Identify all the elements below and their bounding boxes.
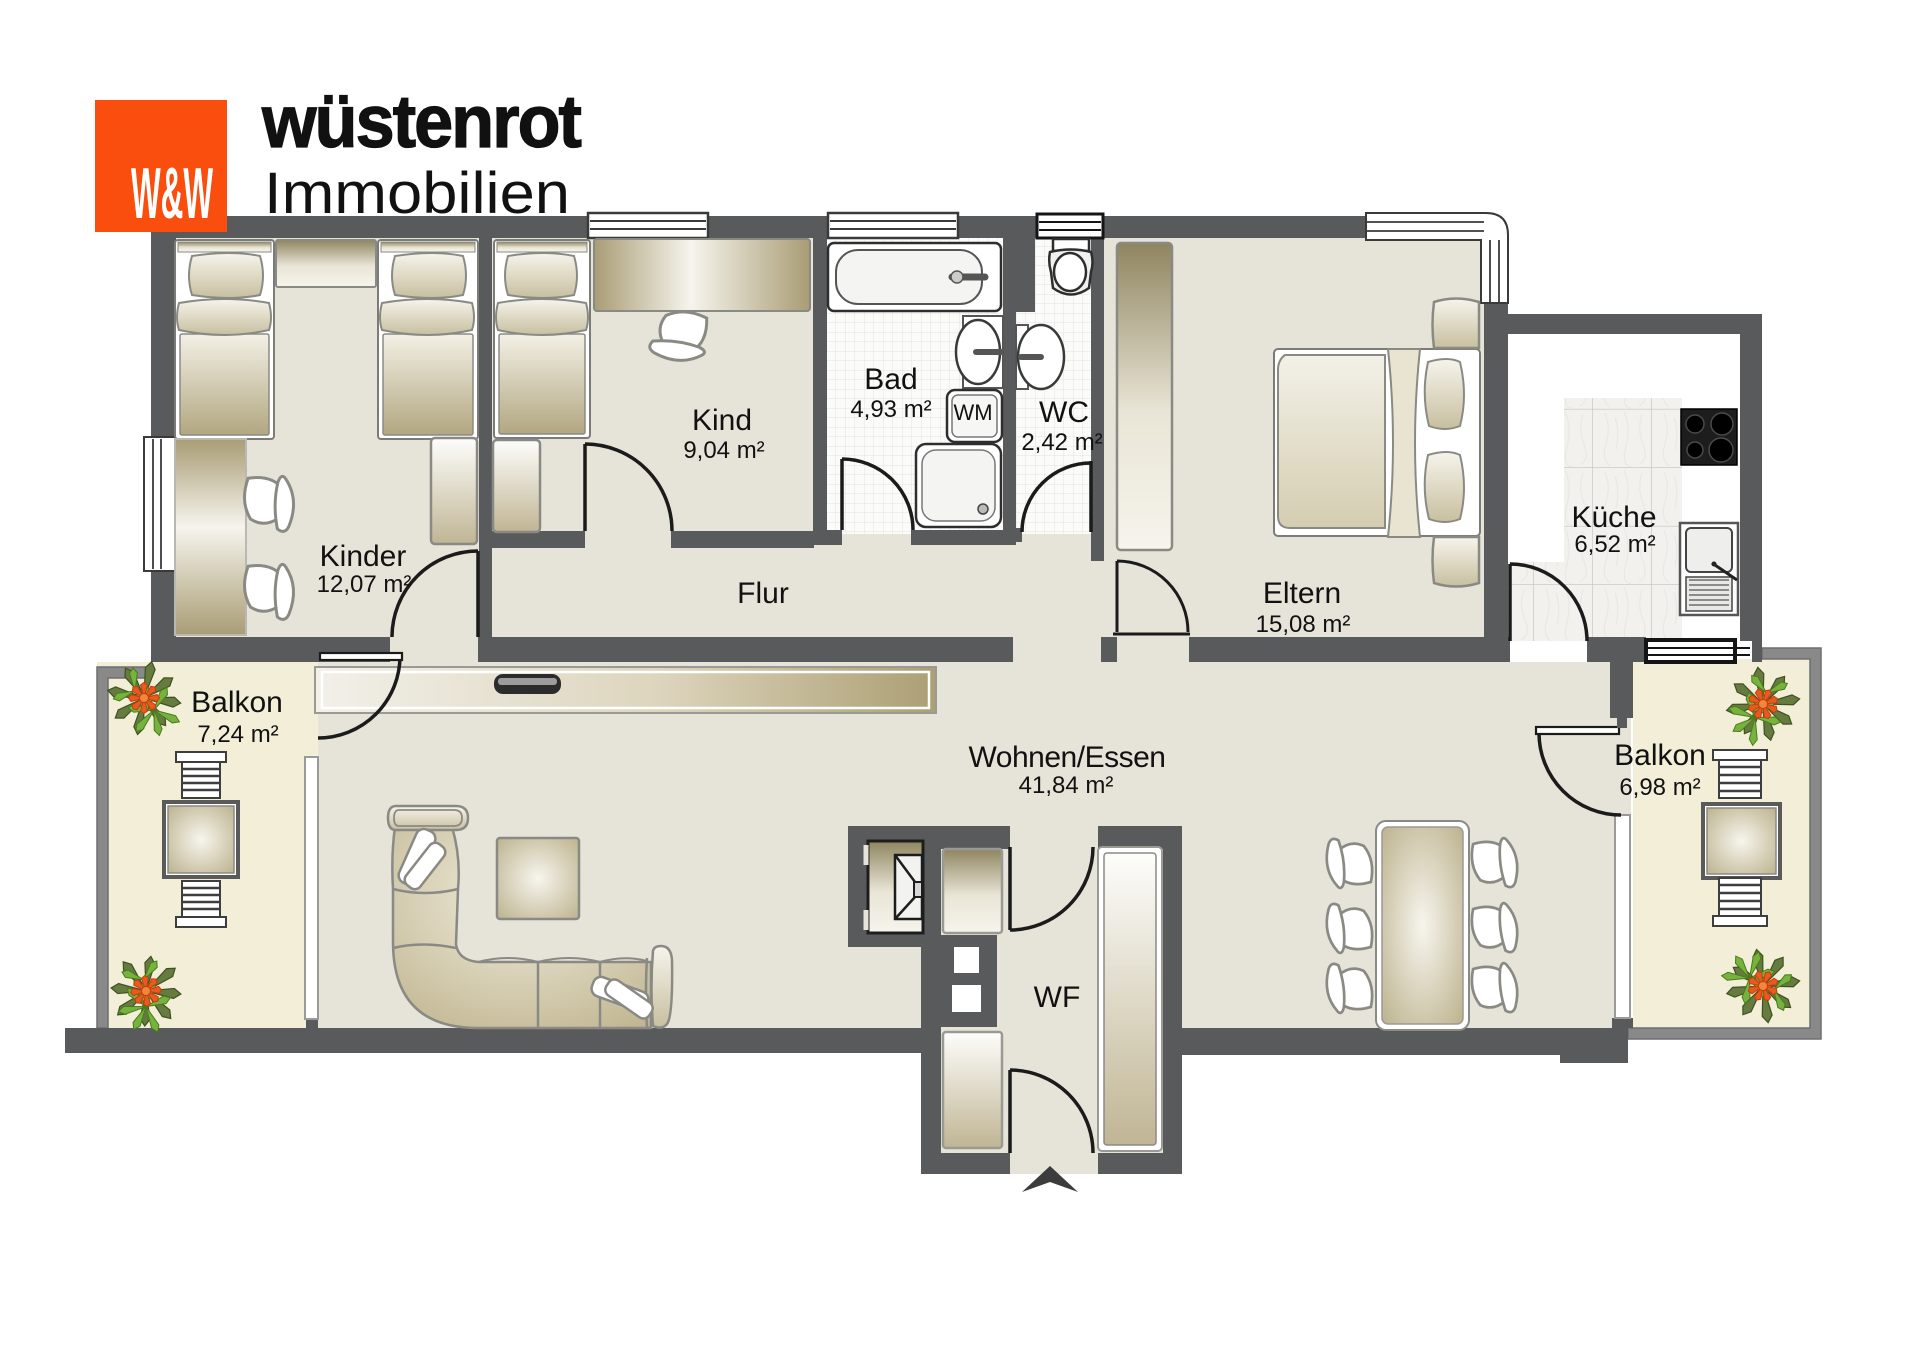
svg-text:Immobilien: Immobilien <box>264 161 570 226</box>
svg-text:7,24 m²: 7,24 m² <box>197 721 278 748</box>
svg-text:2,42 m²: 2,42 m² <box>1021 429 1102 456</box>
svg-text:WF: WF <box>1034 981 1081 1014</box>
svg-text:12,07 m²: 12,07 m² <box>317 571 412 598</box>
svg-text:6,52 m²: 6,52 m² <box>1574 531 1655 558</box>
svg-text:Wohnen/Essen: Wohnen/Essen <box>969 741 1166 774</box>
svg-text:Kind: Kind <box>692 404 752 437</box>
svg-text:Küche: Küche <box>1571 501 1656 534</box>
svg-text:WC: WC <box>1039 396 1089 429</box>
svg-text:Bad: Bad <box>864 363 917 396</box>
svg-text:Flur: Flur <box>737 577 789 610</box>
svg-text:Eltern: Eltern <box>1263 577 1341 610</box>
svg-text:wüstenrot: wüstenrot <box>261 80 581 163</box>
svg-text:WM: WM <box>953 400 992 425</box>
svg-text:Balkon: Balkon <box>1614 739 1706 772</box>
svg-text:4,93 m²: 4,93 m² <box>850 396 931 423</box>
svg-text:15,08 m²: 15,08 m² <box>1256 611 1351 638</box>
svg-text:41,84 m²: 41,84 m² <box>1019 772 1114 799</box>
svg-text:6,98 m²: 6,98 m² <box>1619 774 1700 801</box>
svg-text:W&W: W&W <box>131 154 213 234</box>
svg-text:Balkon: Balkon <box>191 686 283 719</box>
svg-text:Kinder: Kinder <box>320 540 407 573</box>
svg-text:9,04 m²: 9,04 m² <box>683 437 764 464</box>
